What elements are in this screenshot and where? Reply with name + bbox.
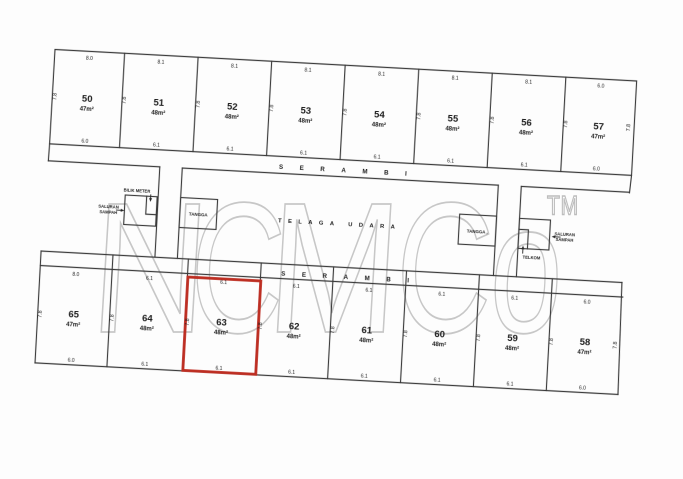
svg-text:C: C	[391, 165, 498, 373]
svg-text:47m²: 47m²	[577, 349, 591, 357]
svg-text:48m²: 48m²	[140, 325, 154, 333]
svg-text:53: 53	[300, 105, 311, 117]
svg-text:6.1: 6.1	[373, 154, 380, 160]
svg-text:7.8: 7.8	[109, 314, 115, 322]
svg-text:7.8: 7.8	[490, 116, 496, 124]
svg-text:6.1: 6.1	[220, 280, 227, 286]
svg-text:6.1: 6.1	[434, 377, 441, 383]
svg-text:8.1: 8.1	[231, 64, 238, 70]
svg-text:6.1: 6.1	[146, 276, 153, 282]
svg-text:6.1: 6.1	[506, 381, 513, 387]
svg-text:52: 52	[227, 101, 238, 113]
svg-text:51: 51	[153, 97, 165, 109]
svg-text:7.8: 7.8	[549, 338, 555, 346]
svg-text:60: 60	[434, 329, 445, 341]
svg-text:65: 65	[68, 309, 80, 321]
svg-text:6.1: 6.1	[141, 362, 148, 368]
svg-text:TM: TM	[547, 191, 579, 221]
svg-text:7.8: 7.8	[613, 341, 619, 349]
svg-text:6.1: 6.1	[521, 162, 528, 168]
svg-text:57: 57	[593, 121, 604, 133]
svg-text:7.8: 7.8	[342, 108, 348, 116]
svg-text:61: 61	[361, 325, 373, 337]
svg-text:8.1: 8.1	[378, 72, 385, 78]
svg-text:SAMPAH: SAMPAH	[555, 237, 573, 243]
svg-text:8.1: 8.1	[157, 60, 164, 66]
svg-text:8.0: 8.0	[86, 56, 93, 62]
svg-text:58: 58	[579, 337, 590, 349]
svg-text:7.8: 7.8	[258, 322, 264, 330]
svg-text:6.0: 6.0	[597, 83, 604, 89]
svg-text:59: 59	[507, 333, 518, 345]
svg-text:54: 54	[374, 109, 386, 121]
svg-text:62: 62	[289, 321, 300, 333]
svg-text:6.1: 6.1	[215, 366, 222, 372]
svg-text:8.1: 8.1	[304, 68, 311, 74]
svg-text:6.1: 6.1	[447, 158, 454, 164]
svg-text:TELKOM: TELKOM	[522, 255, 540, 261]
svg-text:6.1: 6.1	[511, 296, 518, 302]
svg-text:6.0: 6.0	[583, 299, 590, 305]
svg-text:7.8: 7.8	[563, 120, 569, 128]
svg-text:8.1: 8.1	[451, 75, 458, 81]
svg-text:7.8: 7.8	[416, 112, 422, 120]
svg-text:55: 55	[447, 113, 459, 125]
svg-text:6.1: 6.1	[300, 150, 307, 156]
svg-text:48m²: 48m²	[359, 337, 373, 345]
svg-text:6.1: 6.1	[438, 292, 445, 298]
svg-text:48m²: 48m²	[372, 121, 386, 129]
svg-text:6.1: 6.1	[361, 374, 368, 380]
svg-text:48m²: 48m²	[519, 129, 533, 137]
svg-text:TANGGA: TANGGA	[189, 211, 209, 217]
svg-text:6.1: 6.1	[293, 284, 300, 290]
svg-text:7.8: 7.8	[476, 334, 482, 342]
svg-text:48m²: 48m²	[298, 117, 312, 125]
svg-text:7.8: 7.8	[330, 326, 336, 334]
svg-text:8.0: 8.0	[72, 272, 79, 278]
svg-text:48m²: 48m²	[151, 109, 165, 117]
svg-text:48m²: 48m²	[445, 125, 459, 133]
svg-text:6.0: 6.0	[68, 358, 75, 364]
svg-text:7.8: 7.8	[52, 93, 58, 101]
svg-text:6.1: 6.1	[226, 146, 233, 152]
svg-text:7.8: 7.8	[195, 100, 201, 108]
svg-text:7.8: 7.8	[37, 310, 43, 318]
svg-text:6.1: 6.1	[365, 288, 372, 294]
svg-text:64: 64	[142, 313, 154, 325]
svg-text:6.0: 6.0	[593, 166, 600, 172]
svg-text:50: 50	[82, 94, 93, 106]
svg-text:47m²: 47m²	[66, 321, 80, 329]
svg-text:48m²: 48m²	[432, 341, 446, 349]
svg-text:48m²: 48m²	[286, 333, 300, 341]
svg-text:56: 56	[521, 117, 532, 129]
svg-text:48m²: 48m²	[214, 329, 228, 337]
svg-text:7.8: 7.8	[269, 104, 275, 112]
svg-text:7.8: 7.8	[122, 96, 128, 104]
svg-text:6.1: 6.1	[153, 142, 160, 148]
svg-text:7.8: 7.8	[185, 318, 191, 326]
svg-text:47m²: 47m²	[591, 133, 605, 141]
svg-text:47m²: 47m²	[79, 105, 93, 113]
svg-text:7.8: 7.8	[626, 124, 632, 132]
svg-text:48m²: 48m²	[225, 113, 239, 121]
svg-text:7.8: 7.8	[403, 330, 409, 338]
svg-text:63: 63	[216, 317, 227, 329]
svg-text:6.0: 6.0	[579, 385, 586, 391]
svg-text:6.0: 6.0	[81, 139, 88, 145]
svg-text:6.1: 6.1	[288, 370, 295, 376]
svg-text:48m²: 48m²	[505, 345, 519, 353]
svg-text:SAMPAH: SAMPAH	[99, 209, 117, 215]
svg-text:8.1: 8.1	[525, 79, 532, 85]
